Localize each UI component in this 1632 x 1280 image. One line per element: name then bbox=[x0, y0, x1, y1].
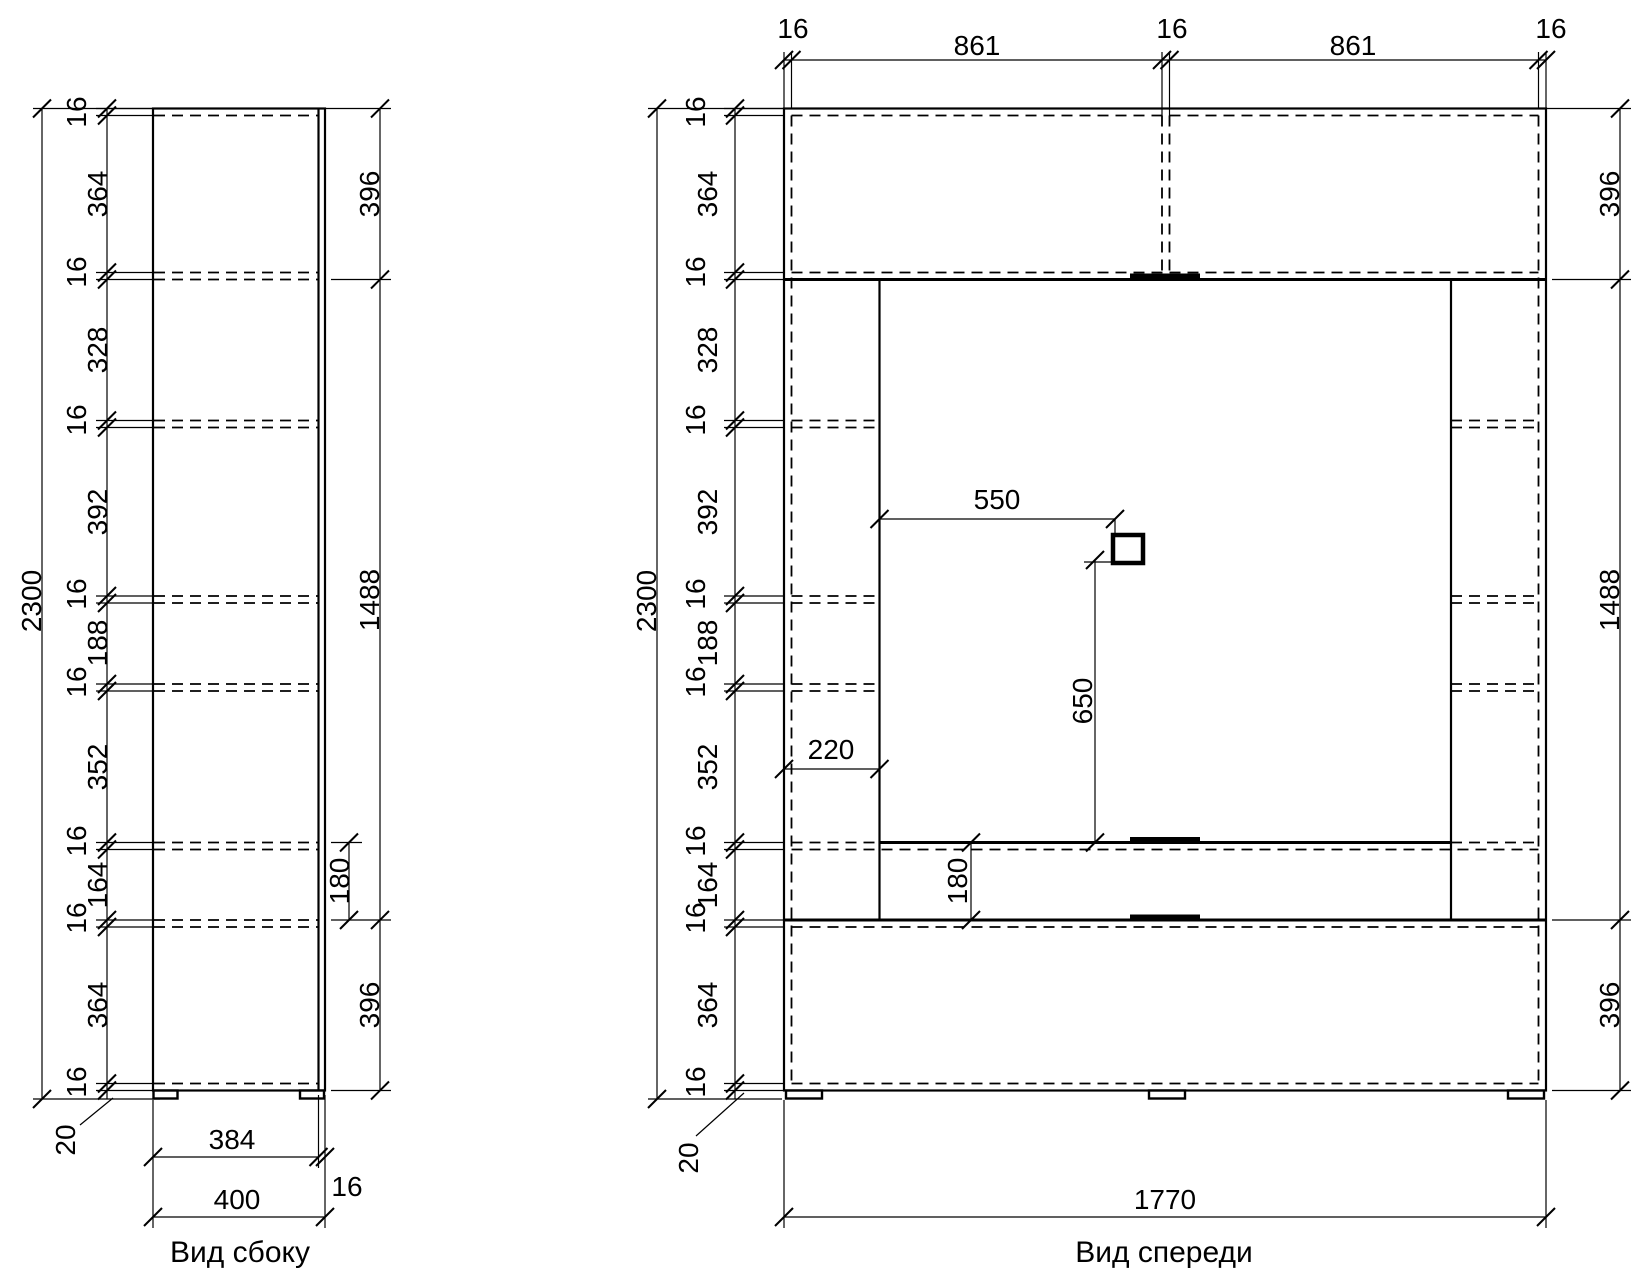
dim-label: 352 bbox=[692, 744, 723, 791]
dim-label: 364 bbox=[82, 171, 113, 218]
dim-label: 16 bbox=[777, 13, 808, 44]
view-title-front: Вид спереди bbox=[1075, 1236, 1253, 1269]
dim-label: 1488 bbox=[354, 569, 385, 631]
dim-label: 16 bbox=[680, 666, 711, 697]
dim-label: 16 bbox=[61, 666, 92, 697]
front-view-linework bbox=[648, 51, 1631, 1228]
dim-label: 2300 bbox=[16, 570, 47, 632]
dim-label: 16 bbox=[61, 96, 92, 127]
dim-label: 16 bbox=[61, 256, 92, 287]
dim-label: 364 bbox=[692, 171, 723, 218]
dim-label: 396 bbox=[1594, 171, 1625, 218]
dim-label: 20 bbox=[50, 1124, 81, 1155]
dim-label: 164 bbox=[692, 862, 723, 909]
dim-label: 384 bbox=[209, 1124, 256, 1155]
dim-label: 650 bbox=[1067, 678, 1098, 725]
dim-label: 328 bbox=[82, 327, 113, 374]
dim-label: 16 bbox=[1156, 13, 1187, 44]
dim-label: 861 bbox=[954, 30, 1001, 61]
dim-label: 20 bbox=[673, 1142, 704, 1173]
dim-label: 16 bbox=[680, 96, 711, 127]
dim-label: 16 bbox=[680, 256, 711, 287]
dim-label: 1770 bbox=[1134, 1184, 1196, 1215]
dim-label: 396 bbox=[354, 171, 385, 218]
dim-label: 16 bbox=[331, 1171, 362, 1202]
dim-label: 16 bbox=[1535, 13, 1566, 44]
view-title-side: Вид сбоку bbox=[170, 1236, 310, 1269]
dim-label: 392 bbox=[82, 489, 113, 536]
dim-label: 16 bbox=[61, 902, 92, 933]
dim-label: 180 bbox=[942, 858, 973, 905]
dim-label: 364 bbox=[692, 982, 723, 1029]
front-view-labels: 16 861 16 861 16 2300 16 364 16 328 16 3… bbox=[631, 13, 1625, 1269]
dim-label: 364 bbox=[82, 982, 113, 1029]
dim-label: 188 bbox=[82, 620, 113, 667]
dim-label: 550 bbox=[974, 484, 1021, 515]
dim-label: 16 bbox=[680, 825, 711, 856]
dim-label: 861 bbox=[1330, 30, 1377, 61]
dim-label: 16 bbox=[680, 1066, 711, 1097]
dim-label: 220 bbox=[808, 734, 855, 765]
dim-label: 188 bbox=[692, 620, 723, 667]
dim-label: 164 bbox=[82, 862, 113, 909]
dim-label: 16 bbox=[680, 578, 711, 609]
dim-label: 400 bbox=[214, 1184, 261, 1215]
dim-label: 16 bbox=[61, 1066, 92, 1097]
dim-label: 1488 bbox=[1594, 569, 1625, 631]
dim-label: 328 bbox=[692, 327, 723, 374]
dim-label: 16 bbox=[61, 578, 92, 609]
dim-label: 392 bbox=[692, 489, 723, 536]
dim-label: 180 bbox=[324, 858, 355, 905]
dim-label: 2300 bbox=[631, 570, 662, 632]
dim-label: 396 bbox=[1594, 982, 1625, 1029]
dim-label: 352 bbox=[82, 744, 113, 791]
dim-label: 396 bbox=[354, 982, 385, 1029]
dim-label: 16 bbox=[61, 404, 92, 435]
dim-label: 16 bbox=[61, 825, 92, 856]
dim-label: 16 bbox=[680, 404, 711, 435]
dim-label: 16 bbox=[680, 902, 711, 933]
technical-drawing: 2300 16 364 16 328 16 392 16 188 16 352 … bbox=[0, 0, 1632, 1280]
